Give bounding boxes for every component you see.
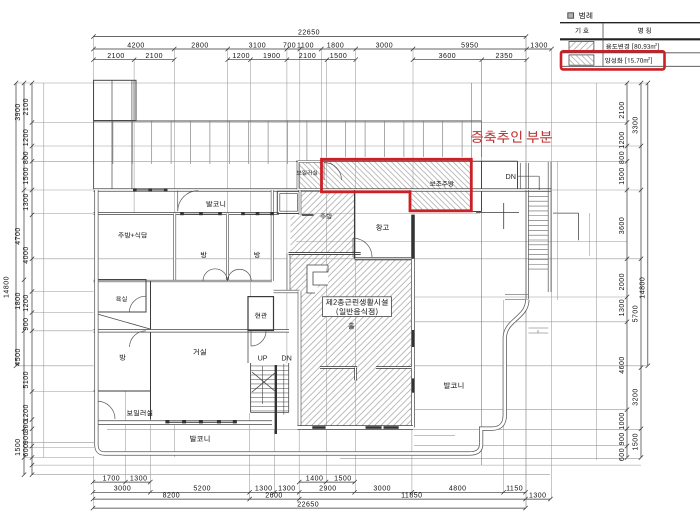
svg-text:2100: 2100	[619, 101, 626, 119]
svg-text:2600: 2600	[265, 492, 283, 499]
svg-text:22650: 22650	[298, 30, 320, 37]
svg-text:1500: 1500	[334, 475, 352, 482]
svg-text:3100: 3100	[249, 42, 267, 49]
svg-text:1900: 1900	[263, 53, 281, 60]
svg-text:1300: 1300	[619, 299, 626, 317]
svg-text:2800: 2800	[191, 42, 209, 49]
svg-text:4500: 4500	[15, 348, 22, 366]
svg-text:2100: 2100	[23, 98, 30, 116]
svg-text:1200: 1200	[619, 131, 626, 149]
svg-text:1500: 1500	[23, 167, 30, 185]
svg-text:2100: 2100	[107, 53, 125, 60]
svg-text:5200: 5200	[193, 485, 211, 492]
svg-text:2100: 2100	[145, 53, 163, 60]
svg-text:3000: 3000	[114, 485, 132, 492]
svg-text:8200: 8200	[163, 492, 181, 499]
svg-text:2000: 2000	[619, 273, 626, 291]
svg-text:1800: 1800	[327, 42, 345, 49]
svg-text:22650: 22650	[297, 501, 319, 508]
svg-text:600: 600	[619, 448, 626, 461]
svg-text:DN: DN	[281, 354, 291, 363]
svg-text:1200: 1200	[23, 129, 30, 147]
svg-text:2900: 2900	[319, 485, 337, 492]
svg-text:4600: 4600	[619, 356, 626, 374]
svg-text:3000: 3000	[373, 485, 391, 492]
svg-text:1300: 1300	[278, 485, 296, 492]
svg-text:900: 900	[23, 431, 30, 444]
svg-text:700: 700	[283, 42, 296, 49]
svg-text:3000: 3000	[376, 42, 394, 49]
svg-text:4200: 4200	[127, 42, 145, 49]
svg-text:1300: 1300	[529, 492, 547, 499]
svg-text:600: 600	[23, 443, 30, 456]
svg-text:1400: 1400	[306, 475, 324, 482]
svg-text:1300: 1300	[130, 475, 148, 482]
svg-text:1200: 1200	[23, 294, 30, 312]
svg-text:4800: 4800	[449, 485, 467, 492]
svg-text:UP: UP	[258, 354, 268, 363]
svg-text:1300: 1300	[23, 193, 30, 211]
svg-text:2100: 2100	[299, 53, 317, 60]
svg-text:800: 800	[23, 151, 30, 164]
svg-text:1500: 1500	[330, 53, 348, 60]
svg-text:800: 800	[619, 151, 626, 164]
svg-text:3600: 3600	[439, 53, 457, 60]
svg-text:3200: 3200	[633, 388, 640, 406]
svg-text:5700: 5700	[633, 305, 640, 323]
svg-text:1000: 1000	[619, 412, 626, 430]
svg-text:3300: 3300	[633, 116, 640, 134]
svg-text:1500: 1500	[15, 438, 22, 456]
svg-text:300: 300	[23, 420, 30, 433]
svg-text:DN: DN	[506, 172, 516, 181]
svg-text:1100: 1100	[297, 42, 314, 49]
svg-text:1500: 1500	[619, 167, 626, 185]
svg-text:1200: 1200	[23, 404, 30, 422]
svg-text:1300: 1300	[255, 485, 273, 492]
svg-text:2350: 2350	[496, 53, 514, 60]
svg-text:5100: 5100	[23, 371, 30, 389]
svg-text:11850: 11850	[401, 492, 422, 499]
svg-text:14800: 14800	[4, 276, 11, 298]
svg-text:5950: 5950	[461, 42, 479, 49]
svg-text:3600: 3600	[619, 217, 626, 235]
svg-text:1150: 1150	[506, 485, 523, 492]
svg-text:1500: 1500	[633, 433, 640, 451]
svg-text:4700: 4700	[15, 227, 22, 245]
svg-text:14800: 14800	[640, 277, 647, 299]
svg-text:1700: 1700	[103, 475, 121, 482]
svg-text:4000: 4000	[23, 246, 30, 264]
svg-text:900: 900	[23, 317, 30, 330]
svg-text:1300: 1300	[530, 42, 548, 49]
svg-text:900: 900	[619, 432, 626, 445]
svg-text:1800: 1800	[15, 292, 22, 310]
svg-text:1200: 1200	[232, 53, 250, 60]
svg-text:3900: 3900	[15, 103, 22, 121]
